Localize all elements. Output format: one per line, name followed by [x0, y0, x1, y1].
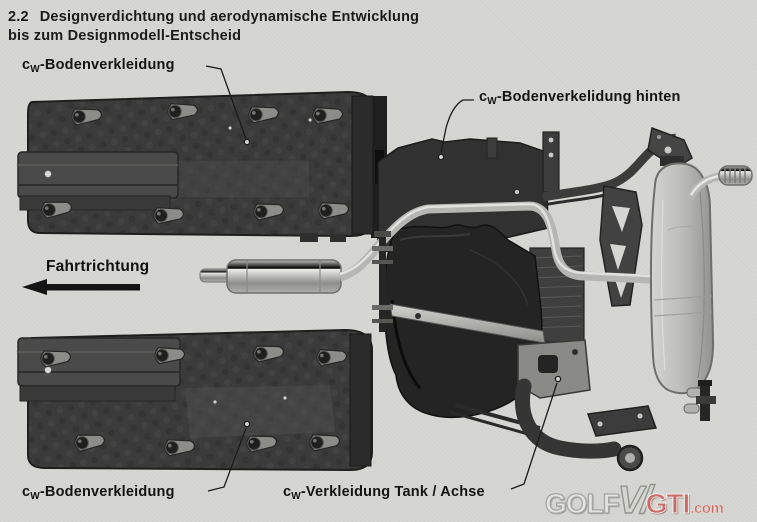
page-title-line1: 2.2Designverdichtung und aerodynamische …: [8, 8, 419, 27]
watermark-golf: GOLF: [545, 490, 619, 520]
watermark-logo: GOLFV/GTI.com: [545, 481, 723, 520]
rear-muffler: [651, 156, 713, 393]
front-underbody-panel-bottom: [18, 330, 372, 470]
label-underbody-panel-rear: cW-Bodenverkelidung hinten: [479, 89, 681, 107]
watermark-gti: GTI: [646, 490, 690, 520]
label-underbody-panel-front-top: cW-Bodenverkleidung: [22, 57, 175, 75]
label-underbody-panel-front-bottom: cW-Bodenverkleidung: [22, 484, 175, 502]
watermark-com: .com: [690, 501, 723, 520]
label-tank-axle-cover: cW-Verkleidung Tank / Achse: [283, 484, 485, 502]
direction-arrow-icon: [22, 279, 140, 295]
page-title-line2: bis zum Designmodell-Entscheid: [8, 27, 419, 46]
watermark-v: V/: [618, 481, 649, 520]
scanned-document-page: 2.2Designverdichtung und aerodynamische …: [0, 0, 757, 522]
front-underbody-panel-top: [18, 92, 374, 242]
section-number: 2.2: [8, 9, 29, 25]
label-driving-direction: Fahrtrichtung: [46, 258, 149, 276]
page-title: 2.2Designverdichtung und aerodynamische …: [8, 8, 419, 46]
center-muffler: [200, 260, 341, 293]
